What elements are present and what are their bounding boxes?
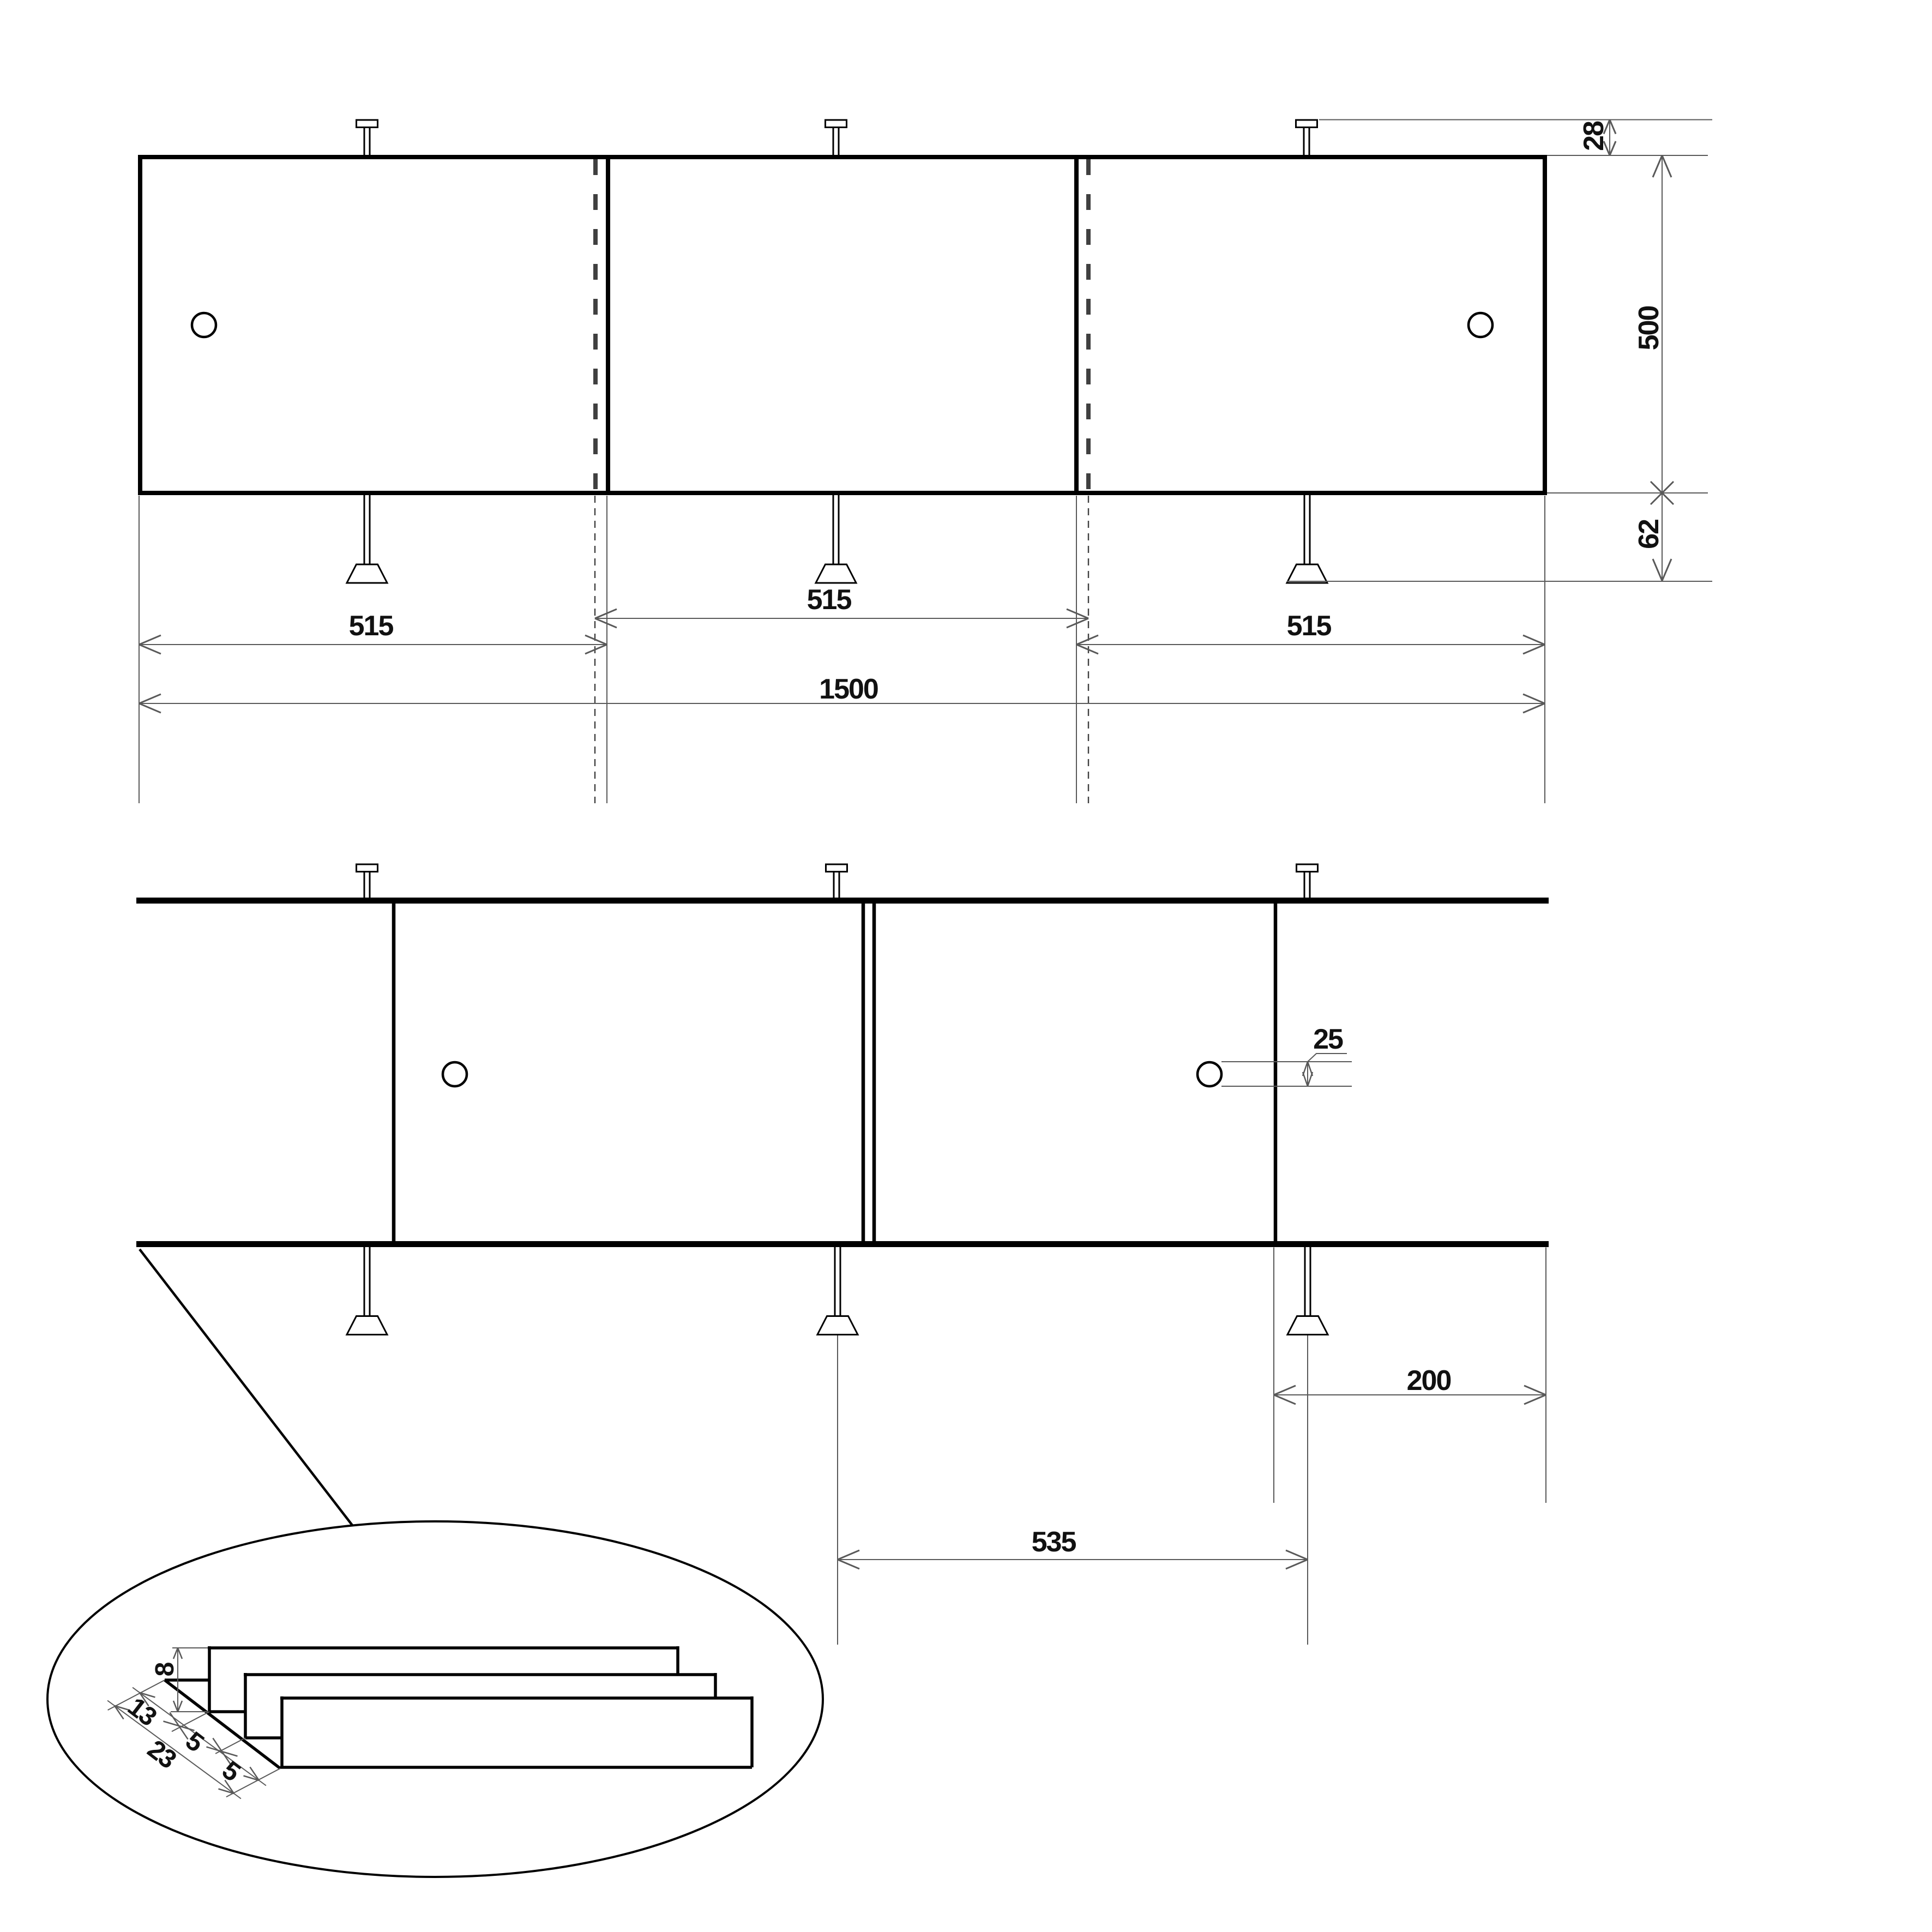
svg-text:535: 535 — [1032, 1526, 1076, 1558]
svg-text:515: 515 — [807, 584, 852, 616]
svg-text:28: 28 — [1578, 121, 1610, 151]
svg-text:500: 500 — [1633, 306, 1665, 351]
svg-text:8: 8 — [151, 1662, 179, 1676]
svg-text:1500: 1500 — [819, 673, 878, 705]
svg-text:62: 62 — [1633, 520, 1665, 549]
svg-text:25: 25 — [1313, 1024, 1343, 1055]
svg-text:515: 515 — [349, 610, 394, 642]
svg-text:515: 515 — [1287, 610, 1332, 642]
svg-text:200: 200 — [1407, 1365, 1451, 1397]
